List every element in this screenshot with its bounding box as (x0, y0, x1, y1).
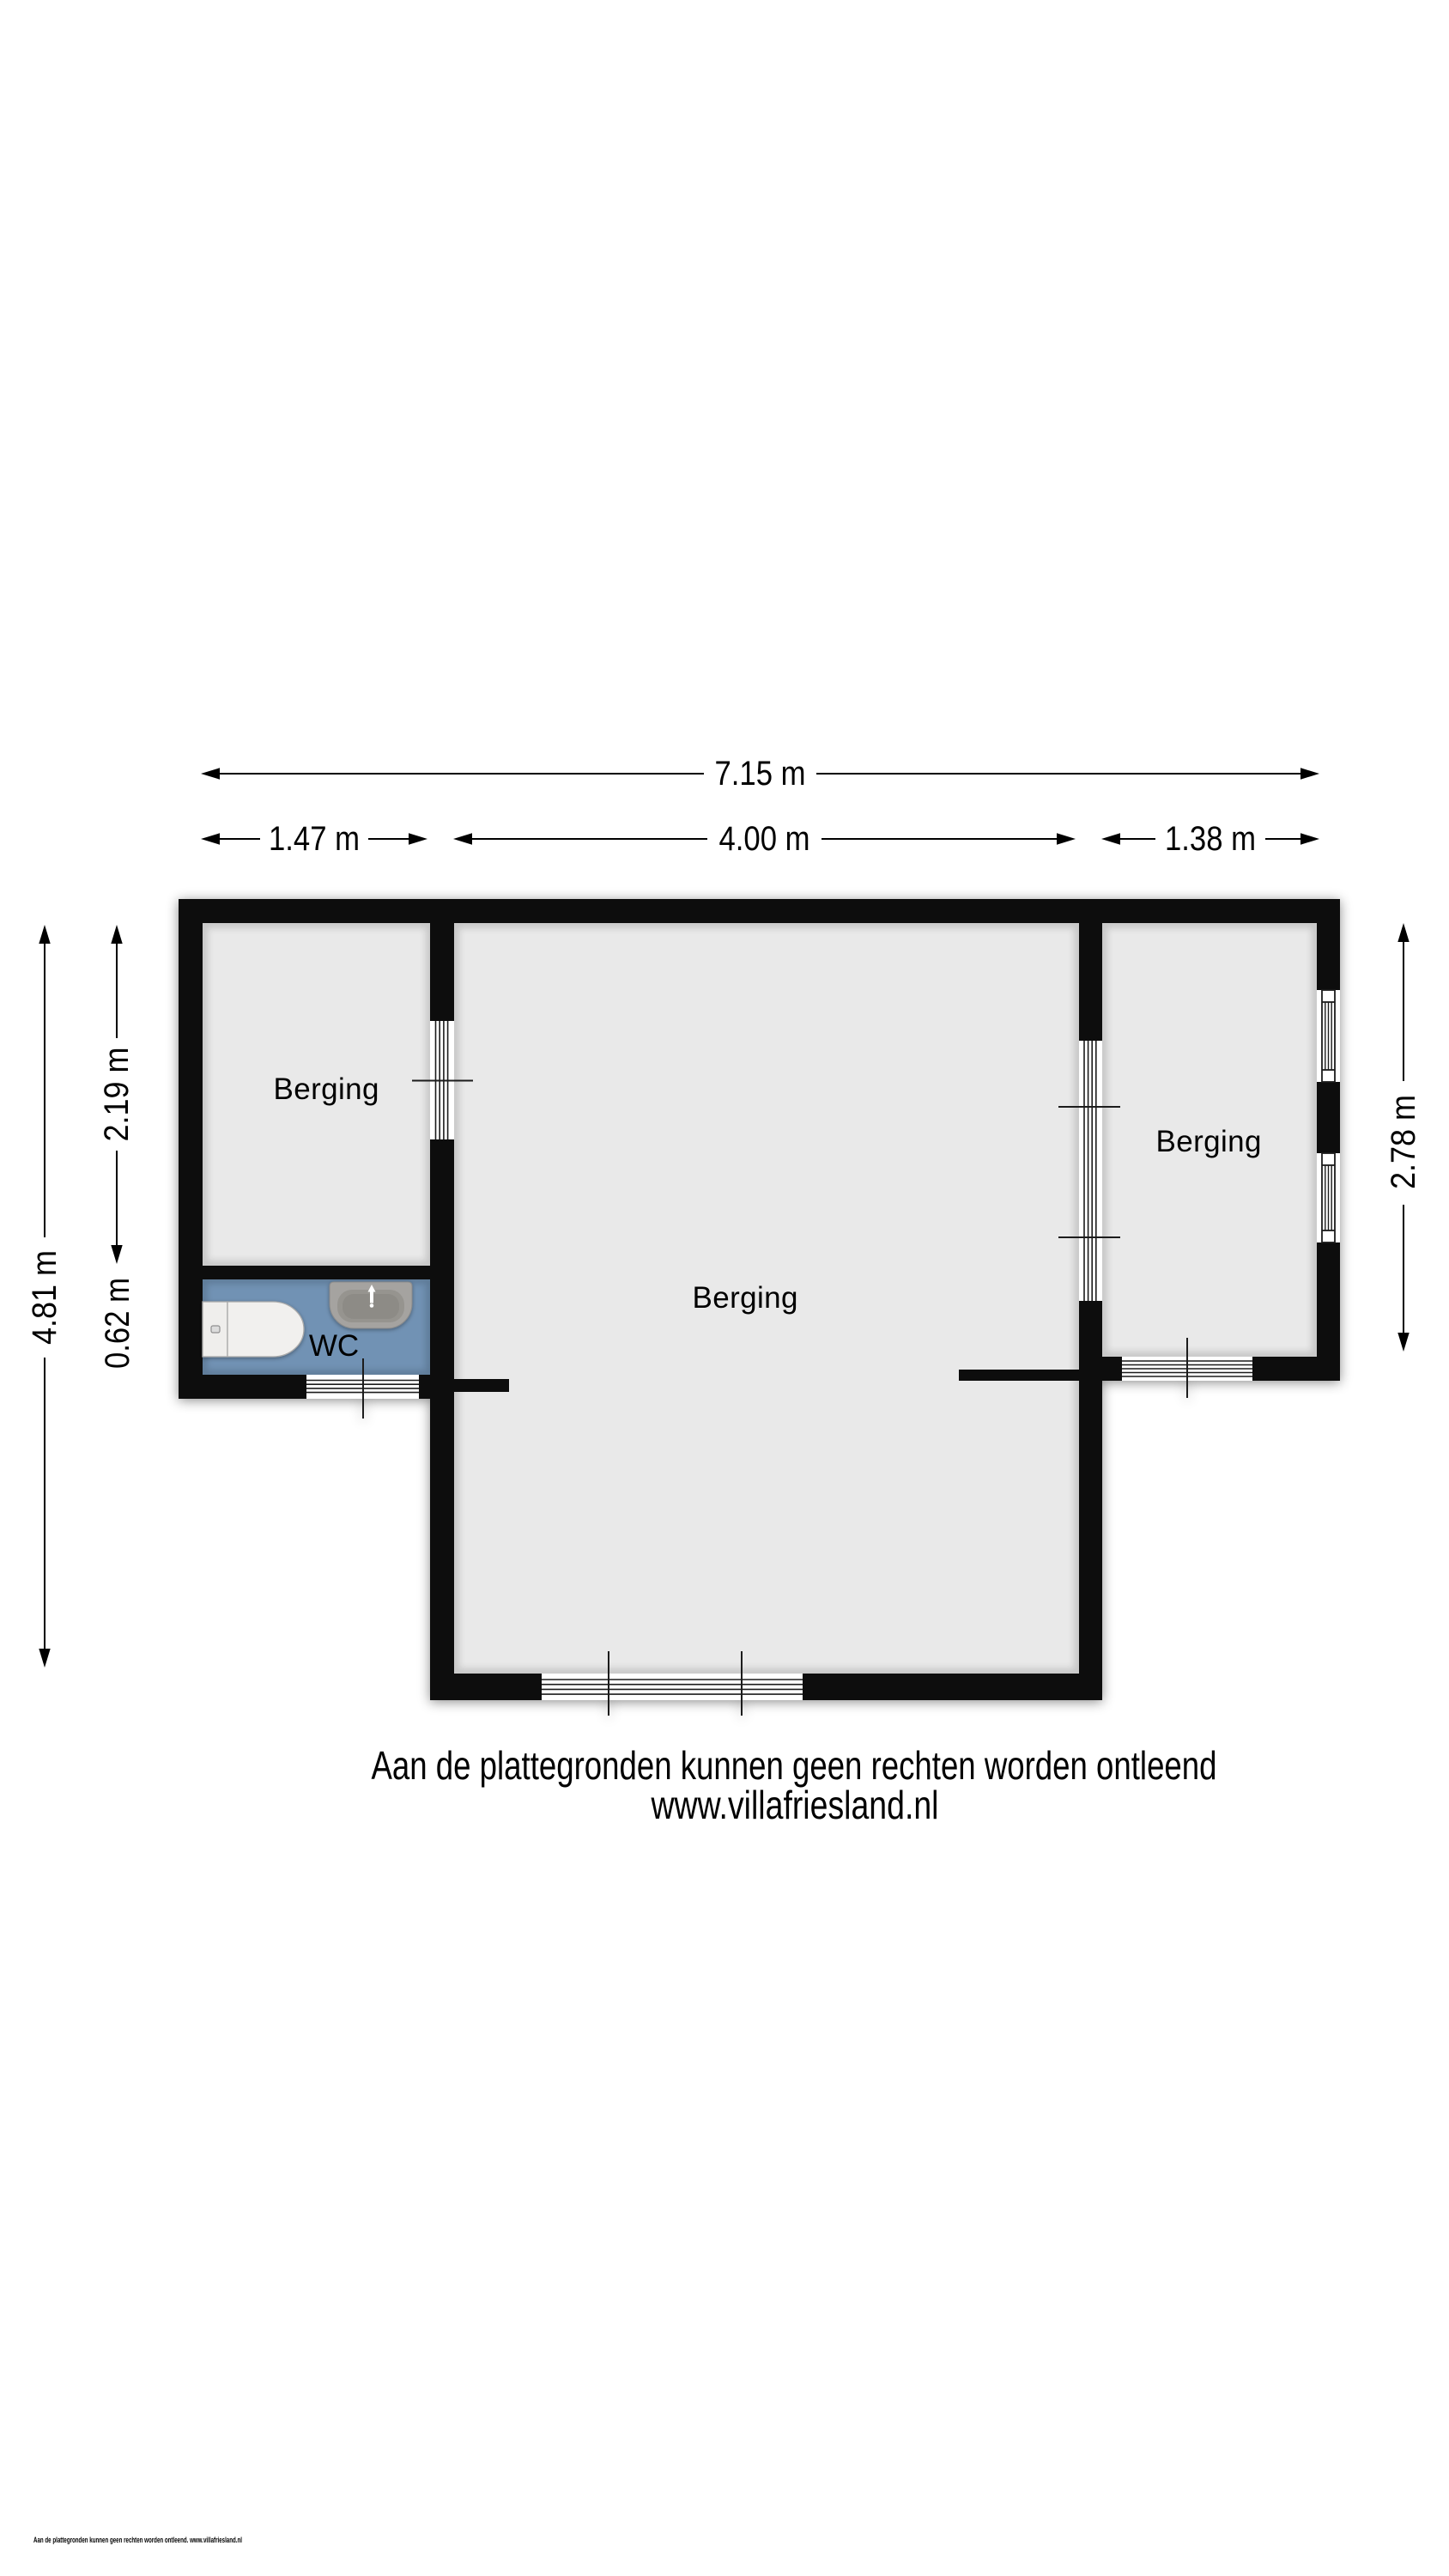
svg-text:1.47 m: 1.47 m (269, 820, 360, 858)
svg-text:0.62 m: 0.62 m (99, 1278, 136, 1369)
svg-text:www.villafriesland.nl: www.villafriesland.nl (651, 1783, 939, 1827)
svg-text:Berging: Berging (274, 1072, 379, 1106)
svg-text:2.19 m: 2.19 m (98, 1048, 136, 1142)
svg-text:Berging: Berging (693, 1281, 798, 1315)
svg-text:WC: WC (309, 1329, 359, 1363)
svg-text:Aan de plattegronden kunnen ge: Aan de plattegronden kunnen geen rechten… (372, 1743, 1217, 1788)
svg-text:1.38 m: 1.38 m (1165, 820, 1256, 858)
svg-text:Berging: Berging (1156, 1125, 1262, 1158)
svg-text:4.00 m: 4.00 m (719, 820, 810, 858)
svg-text:2.78 m: 2.78 m (1385, 1095, 1422, 1189)
svg-text:4.81 m: 4.81 m (26, 1250, 64, 1345)
svg-text:Aan de plattegronden kunnen ge: Aan de plattegronden kunnen geen rechten… (33, 2536, 242, 2544)
svg-text:7.15 m: 7.15 m (715, 755, 806, 793)
